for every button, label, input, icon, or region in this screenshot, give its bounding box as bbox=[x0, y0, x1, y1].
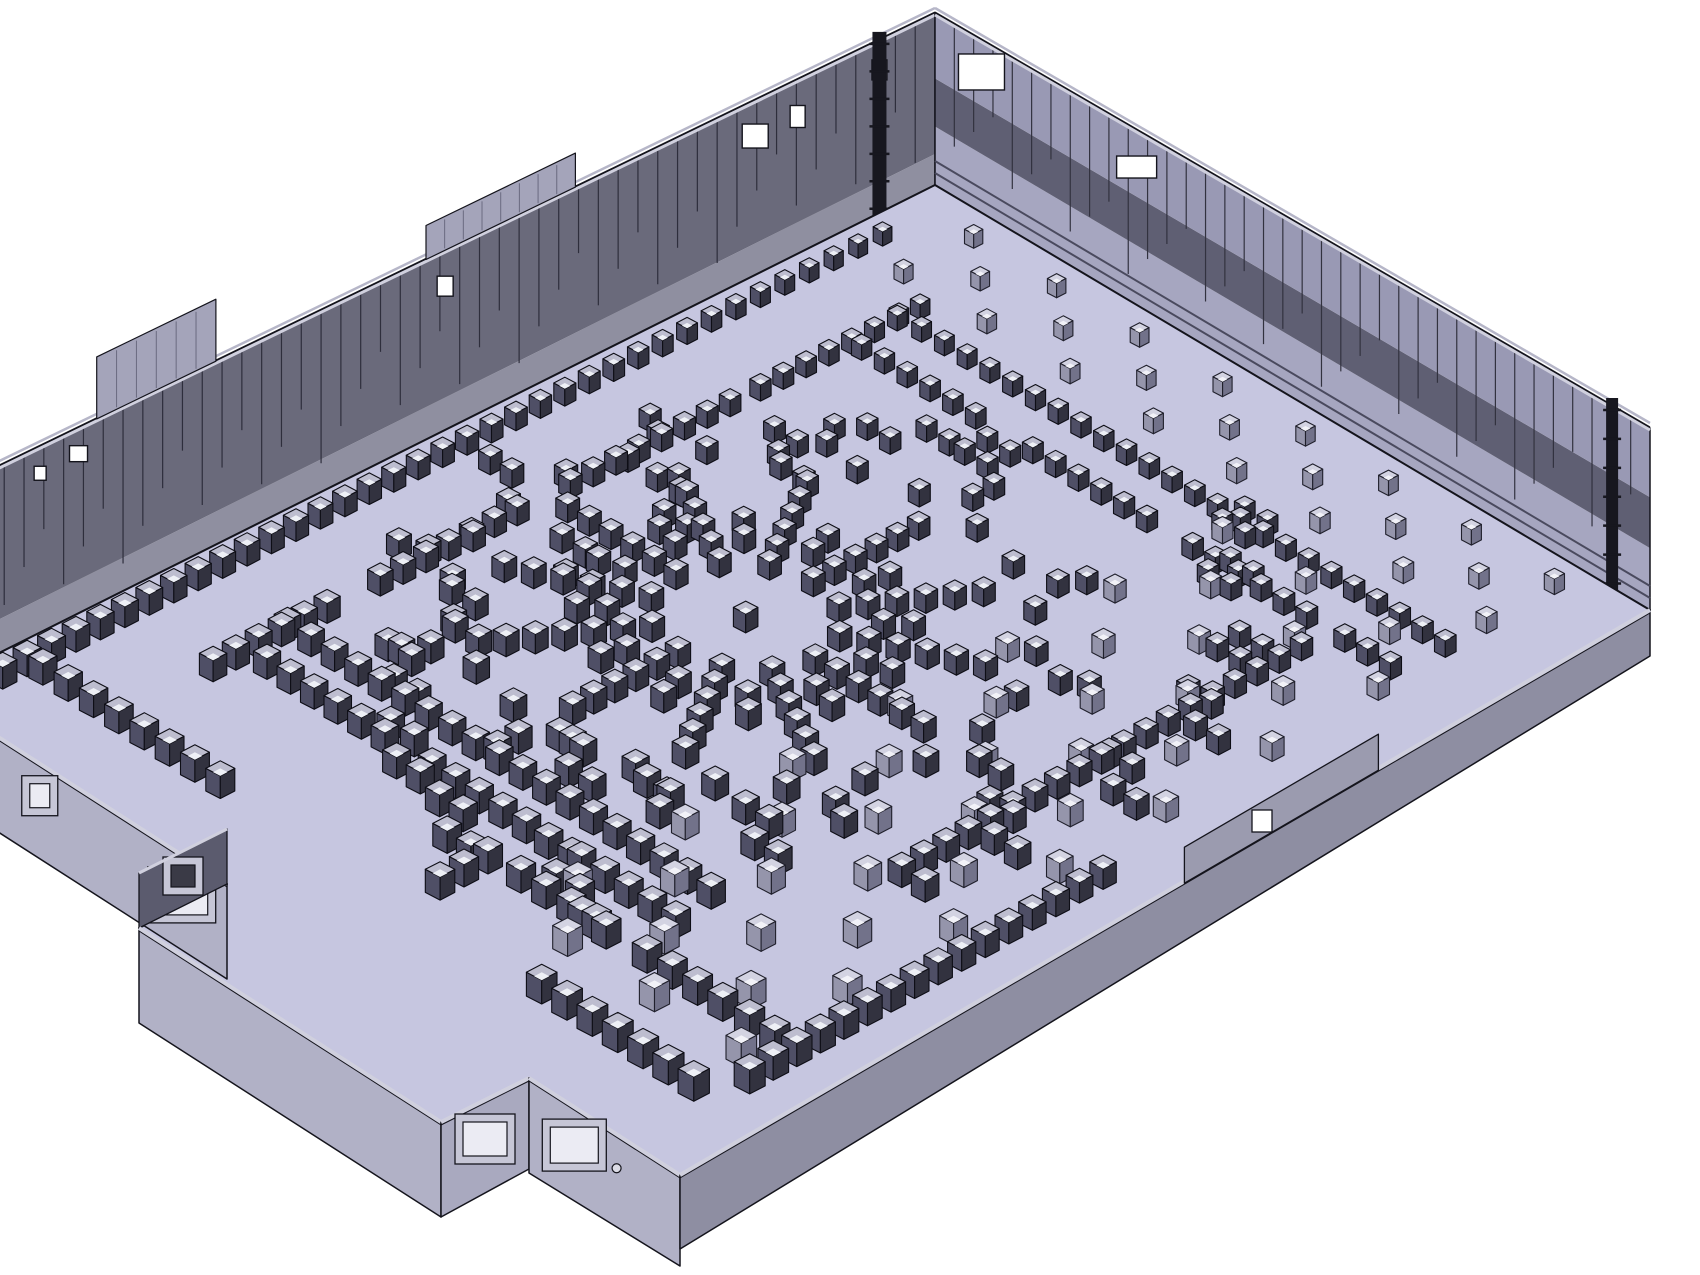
cube bbox=[1022, 437, 1043, 464]
cube bbox=[696, 400, 718, 428]
cube bbox=[1250, 574, 1272, 602]
cube bbox=[943, 389, 964, 416]
cube bbox=[651, 679, 677, 713]
cube bbox=[773, 362, 794, 389]
cube bbox=[1412, 616, 1434, 644]
cube bbox=[1024, 595, 1047, 625]
cube bbox=[185, 557, 211, 591]
cube bbox=[1272, 675, 1295, 705]
cube bbox=[1047, 274, 1066, 298]
cube bbox=[439, 573, 464, 606]
cube bbox=[1068, 464, 1089, 491]
cube bbox=[1476, 606, 1497, 633]
cube bbox=[1290, 632, 1312, 661]
cube bbox=[479, 444, 503, 475]
cube bbox=[1213, 372, 1232, 397]
cube bbox=[1223, 669, 1246, 699]
cube bbox=[155, 729, 184, 767]
cube bbox=[734, 1054, 765, 1094]
cube bbox=[965, 402, 986, 429]
cube bbox=[1025, 636, 1049, 667]
cube bbox=[773, 770, 800, 805]
framed-window-opening bbox=[30, 784, 50, 808]
cube bbox=[1344, 575, 1365, 603]
cube bbox=[1139, 453, 1160, 480]
cube bbox=[1462, 519, 1482, 545]
cube bbox=[894, 259, 913, 284]
cube bbox=[529, 389, 551, 418]
cube bbox=[977, 309, 996, 334]
cube bbox=[639, 973, 669, 1012]
cube bbox=[642, 545, 666, 576]
cube bbox=[1048, 665, 1072, 696]
cube bbox=[431, 437, 455, 468]
cube bbox=[1000, 440, 1021, 467]
cube bbox=[880, 427, 901, 455]
cube bbox=[865, 533, 888, 563]
cube bbox=[944, 644, 968, 675]
cube bbox=[259, 521, 285, 554]
cube bbox=[970, 714, 995, 747]
cube bbox=[880, 657, 905, 689]
cube bbox=[1162, 466, 1183, 493]
cube bbox=[672, 804, 700, 840]
cube bbox=[957, 344, 977, 370]
cube bbox=[672, 735, 699, 770]
cube bbox=[966, 513, 988, 542]
cube bbox=[1379, 616, 1401, 644]
cube bbox=[1334, 624, 1356, 653]
wall-window bbox=[437, 276, 453, 296]
cube bbox=[943, 580, 966, 610]
cube bbox=[1076, 566, 1098, 595]
wall-window bbox=[742, 124, 768, 148]
framed-window-opening bbox=[550, 1127, 598, 1163]
wall-window bbox=[1117, 156, 1157, 178]
cube bbox=[886, 522, 909, 552]
cube bbox=[873, 222, 892, 246]
cube bbox=[707, 547, 731, 578]
cube bbox=[1379, 470, 1399, 496]
cube bbox=[1136, 505, 1157, 533]
cube bbox=[588, 641, 614, 674]
wall-window bbox=[34, 466, 46, 480]
cube bbox=[702, 766, 729, 801]
cube bbox=[1184, 710, 1208, 741]
cube bbox=[1080, 683, 1104, 714]
cube bbox=[333, 485, 358, 517]
framed-window-opening bbox=[171, 865, 195, 887]
cube bbox=[1047, 569, 1070, 598]
cube bbox=[1366, 589, 1387, 617]
cube bbox=[1165, 734, 1189, 766]
cube bbox=[603, 353, 625, 381]
cube bbox=[1130, 323, 1149, 348]
cube bbox=[640, 610, 665, 643]
cube bbox=[1144, 408, 1164, 434]
cube bbox=[1185, 480, 1206, 507]
cube bbox=[977, 426, 998, 453]
cube bbox=[1235, 522, 1256, 549]
cube bbox=[750, 374, 771, 402]
cube bbox=[831, 803, 858, 838]
cube bbox=[910, 294, 930, 319]
cube bbox=[1054, 316, 1073, 341]
cube bbox=[455, 425, 478, 455]
cube bbox=[962, 483, 984, 511]
cube bbox=[391, 552, 416, 585]
cube bbox=[0, 652, 17, 689]
cube bbox=[661, 860, 690, 897]
cube bbox=[406, 449, 430, 480]
cube bbox=[876, 744, 902, 778]
cube bbox=[733, 601, 758, 633]
cube bbox=[874, 348, 894, 374]
cube bbox=[1089, 742, 1114, 774]
cube bbox=[54, 665, 82, 702]
cube bbox=[161, 569, 188, 604]
cube bbox=[130, 713, 159, 750]
cube bbox=[1246, 656, 1269, 686]
cube bbox=[915, 638, 939, 670]
cube bbox=[62, 616, 90, 652]
cube bbox=[199, 646, 226, 682]
cube bbox=[1228, 620, 1250, 649]
cube bbox=[639, 582, 664, 614]
cube bbox=[1060, 358, 1080, 384]
cube bbox=[950, 852, 977, 887]
cube bbox=[770, 451, 792, 480]
cube bbox=[298, 622, 325, 657]
cube bbox=[775, 270, 795, 296]
cube bbox=[996, 632, 1020, 663]
cube bbox=[1260, 731, 1284, 762]
cube bbox=[505, 495, 529, 526]
cube bbox=[852, 762, 878, 796]
cube bbox=[678, 1061, 709, 1102]
cube bbox=[206, 761, 235, 799]
cube bbox=[696, 436, 718, 465]
cube bbox=[605, 445, 628, 475]
cube bbox=[913, 744, 939, 777]
cube bbox=[500, 458, 524, 489]
cube bbox=[554, 377, 576, 406]
cube bbox=[105, 697, 134, 734]
cube bbox=[628, 341, 649, 369]
cube bbox=[736, 697, 762, 731]
cube bbox=[1273, 587, 1295, 615]
cube bbox=[1101, 773, 1126, 806]
cube bbox=[493, 623, 519, 657]
cube bbox=[984, 686, 1009, 718]
cube bbox=[819, 339, 840, 366]
cube bbox=[1137, 365, 1156, 390]
cube bbox=[550, 522, 574, 554]
cube bbox=[854, 855, 882, 891]
cube bbox=[888, 305, 908, 331]
cube bbox=[701, 306, 722, 333]
cube bbox=[914, 583, 937, 614]
cube bbox=[1275, 534, 1296, 561]
cube bbox=[849, 234, 868, 259]
cube bbox=[1153, 790, 1178, 823]
cube bbox=[1092, 628, 1115, 658]
cube bbox=[1094, 425, 1114, 452]
cube bbox=[732, 523, 755, 554]
cube bbox=[646, 462, 669, 492]
cube bbox=[719, 389, 741, 417]
cube bbox=[234, 533, 260, 566]
cube bbox=[708, 982, 738, 1021]
cube bbox=[442, 609, 468, 643]
cube bbox=[79, 681, 107, 718]
cube bbox=[846, 455, 868, 484]
cube bbox=[857, 413, 878, 441]
cube bbox=[87, 604, 114, 640]
cube bbox=[1058, 793, 1084, 827]
cad-viewport bbox=[0, 0, 1700, 1275]
cube bbox=[965, 225, 983, 249]
framed-window-opening bbox=[463, 1122, 507, 1156]
cube bbox=[480, 413, 503, 443]
ladder-pipe-icon bbox=[869, 32, 889, 217]
cube bbox=[664, 558, 688, 589]
cube bbox=[1469, 563, 1490, 590]
cube bbox=[1220, 415, 1240, 441]
cube bbox=[652, 329, 673, 357]
cube bbox=[1048, 398, 1068, 424]
cube bbox=[136, 581, 163, 616]
cube bbox=[492, 550, 517, 582]
cube bbox=[210, 545, 236, 579]
cube bbox=[1200, 570, 1222, 599]
cube bbox=[764, 416, 786, 444]
cube bbox=[1393, 557, 1414, 584]
cube bbox=[819, 689, 844, 722]
cube bbox=[1206, 632, 1229, 662]
cube bbox=[823, 555, 846, 586]
cube bbox=[980, 357, 1000, 383]
cube bbox=[413, 540, 438, 573]
cube bbox=[673, 411, 695, 440]
cube bbox=[802, 566, 826, 597]
cube bbox=[1296, 421, 1315, 446]
cube bbox=[747, 914, 776, 952]
cube bbox=[750, 282, 770, 308]
cube bbox=[181, 745, 210, 783]
cube bbox=[757, 858, 785, 894]
cube bbox=[368, 563, 394, 596]
cube bbox=[553, 918, 583, 957]
cube bbox=[1116, 439, 1137, 466]
cube bbox=[1207, 724, 1231, 755]
cube bbox=[1227, 458, 1247, 484]
cube bbox=[556, 492, 580, 523]
cube bbox=[1091, 478, 1112, 506]
cube bbox=[599, 519, 623, 550]
cube bbox=[697, 872, 726, 909]
cube bbox=[1004, 835, 1031, 870]
cube bbox=[582, 457, 605, 487]
cube bbox=[916, 415, 937, 443]
cube bbox=[461, 520, 486, 552]
cube bbox=[911, 867, 939, 903]
cube bbox=[382, 461, 406, 492]
cube bbox=[521, 557, 546, 589]
cube bbox=[551, 563, 576, 595]
cube bbox=[907, 511, 930, 540]
cube bbox=[974, 650, 998, 681]
cube bbox=[1435, 629, 1457, 657]
cube bbox=[677, 317, 698, 344]
cube bbox=[357, 473, 381, 505]
cube bbox=[908, 478, 930, 507]
cube bbox=[824, 246, 843, 271]
cube bbox=[1367, 671, 1390, 700]
cube bbox=[1124, 787, 1149, 820]
cube bbox=[646, 793, 674, 829]
cube bbox=[1066, 868, 1093, 903]
cube bbox=[972, 577, 995, 607]
cube bbox=[1386, 513, 1406, 539]
wall-window bbox=[70, 446, 88, 462]
cube bbox=[758, 549, 782, 580]
wall-window bbox=[1252, 810, 1272, 832]
cube bbox=[1268, 644, 1291, 673]
cube bbox=[552, 618, 578, 651]
cube bbox=[726, 294, 746, 320]
cube bbox=[1310, 507, 1331, 534]
cube bbox=[505, 401, 528, 431]
cube bbox=[592, 911, 622, 949]
isometric-hall-rendering bbox=[0, 0, 1700, 1275]
wall-window bbox=[958, 54, 1004, 90]
cube bbox=[912, 317, 932, 343]
cube bbox=[954, 438, 975, 466]
cube bbox=[1134, 718, 1158, 750]
cube bbox=[1002, 550, 1025, 579]
cube bbox=[578, 505, 602, 536]
cube bbox=[1220, 572, 1242, 600]
cube bbox=[651, 423, 673, 452]
cube bbox=[828, 620, 852, 652]
cube bbox=[983, 472, 1005, 500]
cube bbox=[802, 537, 825, 567]
cube bbox=[111, 593, 138, 628]
wall-window bbox=[790, 106, 805, 128]
cube bbox=[1045, 450, 1066, 477]
cube bbox=[843, 911, 871, 948]
cube bbox=[283, 509, 308, 542]
cube bbox=[920, 375, 941, 402]
cube bbox=[578, 365, 600, 394]
cube bbox=[1544, 568, 1564, 594]
cube bbox=[1090, 855, 1117, 889]
cube bbox=[523, 621, 549, 654]
cube bbox=[911, 710, 936, 743]
cube bbox=[345, 652, 372, 687]
wall-port-icon bbox=[612, 1164, 621, 1173]
cube bbox=[321, 637, 348, 672]
cube bbox=[1114, 491, 1135, 519]
cube bbox=[1212, 517, 1233, 544]
cube bbox=[500, 688, 527, 723]
cube bbox=[897, 361, 918, 388]
cube bbox=[852, 334, 872, 360]
cube bbox=[1025, 385, 1045, 411]
cube bbox=[1182, 532, 1204, 560]
cube bbox=[463, 650, 489, 684]
cube bbox=[800, 258, 820, 283]
cube bbox=[29, 649, 57, 686]
cube bbox=[1321, 561, 1342, 589]
cube bbox=[1295, 566, 1316, 594]
cube bbox=[425, 862, 455, 900]
cube bbox=[796, 351, 817, 378]
cube bbox=[827, 592, 851, 623]
cube bbox=[1104, 574, 1126, 603]
cube bbox=[1003, 371, 1023, 397]
cube bbox=[308, 497, 333, 529]
cube bbox=[935, 330, 955, 356]
cube bbox=[1067, 754, 1092, 787]
cube bbox=[816, 429, 838, 457]
cube bbox=[865, 800, 892, 835]
cube bbox=[1303, 464, 1323, 490]
cube bbox=[1357, 637, 1379, 666]
cube bbox=[1071, 412, 1091, 438]
cube bbox=[1156, 705, 1180, 736]
cube bbox=[971, 267, 990, 292]
cube bbox=[981, 821, 1008, 855]
